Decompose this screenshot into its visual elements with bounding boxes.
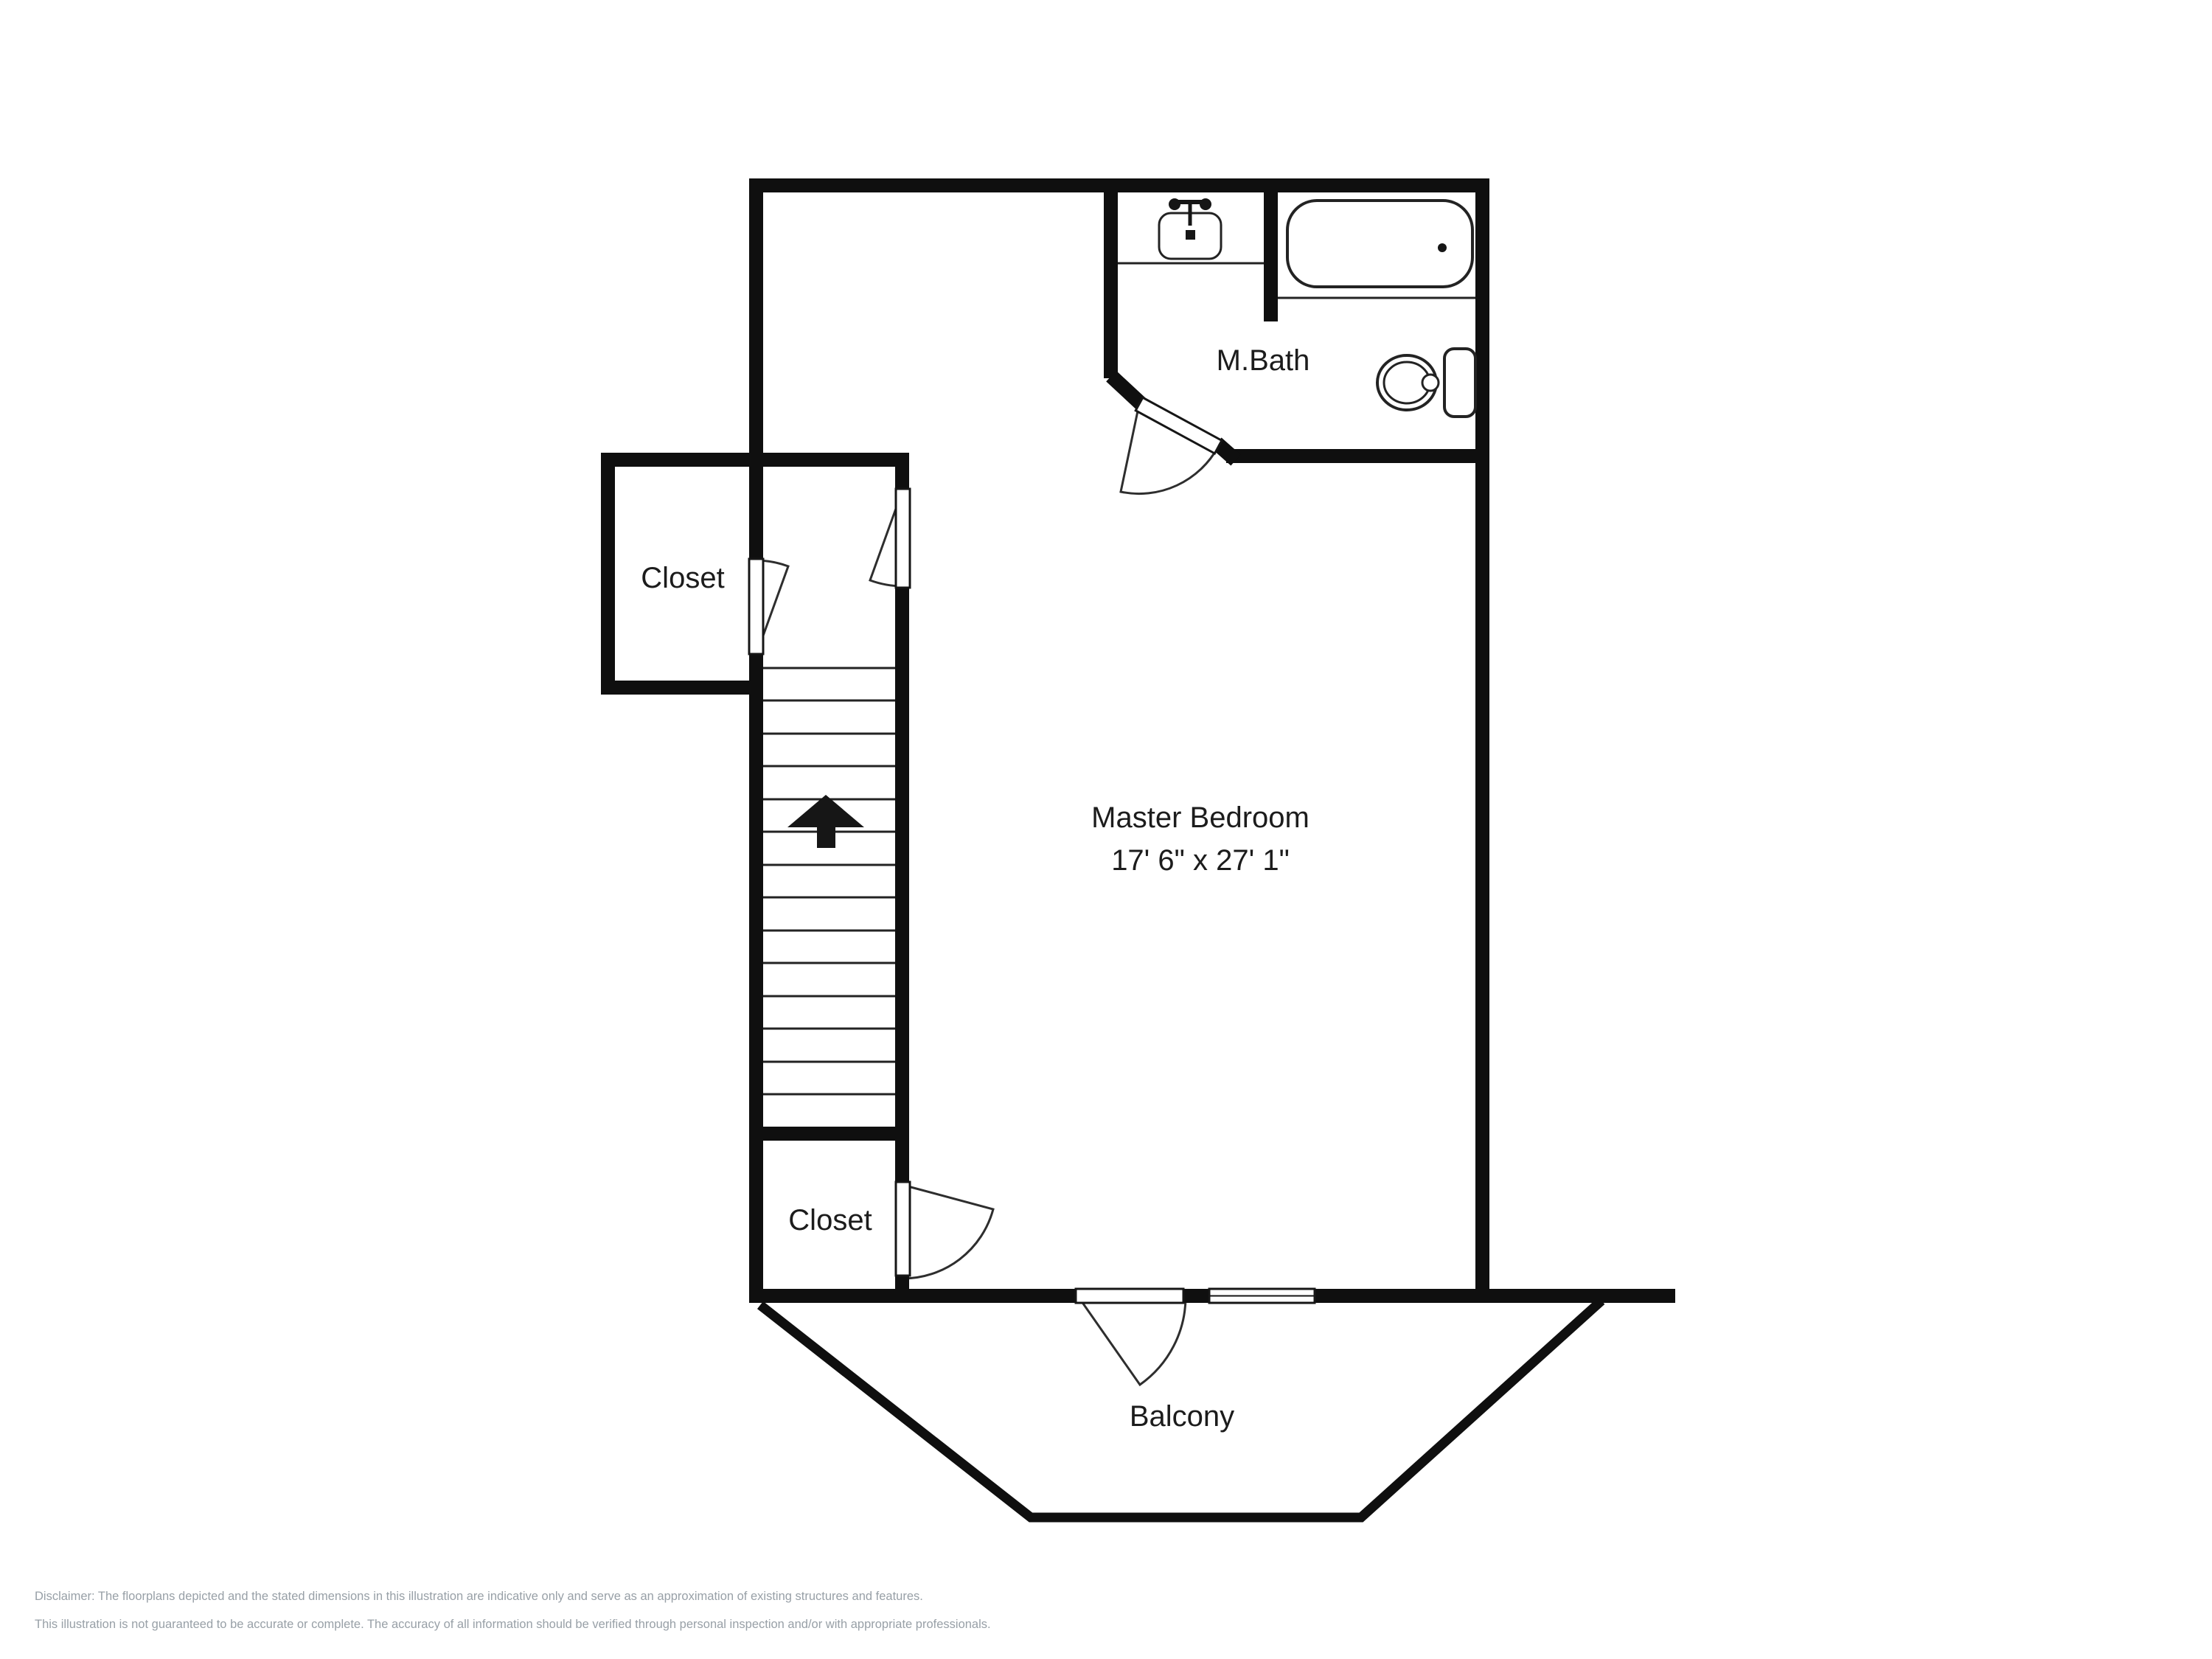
- floor-plan-drawing: M.Bath Closet Master Bedroom 17' 6" x 27…: [0, 0, 2212, 1659]
- wall-bath-left: [1104, 178, 1118, 378]
- toilet-icon: [1377, 349, 1475, 417]
- room-label-balcony: Balcony: [1130, 1400, 1234, 1433]
- wall-bath-bottom: [1226, 449, 1489, 463]
- wall-closet-top: [601, 453, 909, 467]
- wall-stair-right-stub-top: [895, 467, 909, 489]
- door-swing-lower-closet-icon: [902, 1185, 993, 1279]
- room-label-closet-upper: Closet: [641, 562, 724, 594]
- door-swing-balcony-icon: [1078, 1296, 1186, 1385]
- sink-icon: [1159, 198, 1221, 259]
- disclaimer-line-1: Disclaimer: The floorplans depicted and …: [35, 1590, 923, 1603]
- disclaimer-line-2: This illustration is not guaranteed to b…: [35, 1618, 991, 1631]
- wall-top: [749, 178, 1489, 192]
- floor-plan-page: M.Bath Closet Master Bedroom 17' 6" x 27…: [0, 0, 2212, 1659]
- wall-bottom-seg1: [749, 1289, 1076, 1303]
- wall-bath-angle-stub-upper: [1111, 376, 1143, 406]
- stairs: [763, 668, 895, 1094]
- room-label-master-bedroom-dimensions: 17' 6" x 27' 1": [1111, 844, 1290, 877]
- wall-right: [1475, 178, 1489, 1303]
- wall-bath-divider: [1264, 178, 1278, 321]
- window-icon: [1209, 1289, 1315, 1303]
- wall-closet-bottom: [601, 681, 763, 695]
- door-leaf-lower-closet: [896, 1182, 910, 1276]
- room-label-closet-lower: Closet: [788, 1204, 872, 1237]
- room-label-master-bath: M.Bath: [1217, 344, 1310, 377]
- wall-closet-left: [601, 453, 615, 695]
- wall-left-lower: [749, 654, 763, 1303]
- door-leaf-stair-landing: [896, 489, 910, 588]
- stairs-up-arrow-icon: [787, 795, 864, 848]
- door-leaf-balcony: [1076, 1289, 1183, 1303]
- wall-stair-right-stub-bottom: [895, 1274, 909, 1303]
- wall-left-mid: [749, 467, 763, 559]
- door-leaf-upper-closet: [749, 559, 763, 654]
- walls: [601, 178, 1675, 1303]
- wall-bottom-seg2: [1183, 1289, 1209, 1303]
- wall-stair-bottom: [749, 1127, 909, 1141]
- room-label-master-bedroom: Master Bedroom: [1091, 801, 1310, 834]
- bathtub-icon: [1278, 201, 1475, 298]
- wall-bottom-seg3: [1315, 1289, 1675, 1303]
- wall-stair-right-mid: [895, 588, 909, 1182]
- wall-left-upper: [749, 178, 763, 467]
